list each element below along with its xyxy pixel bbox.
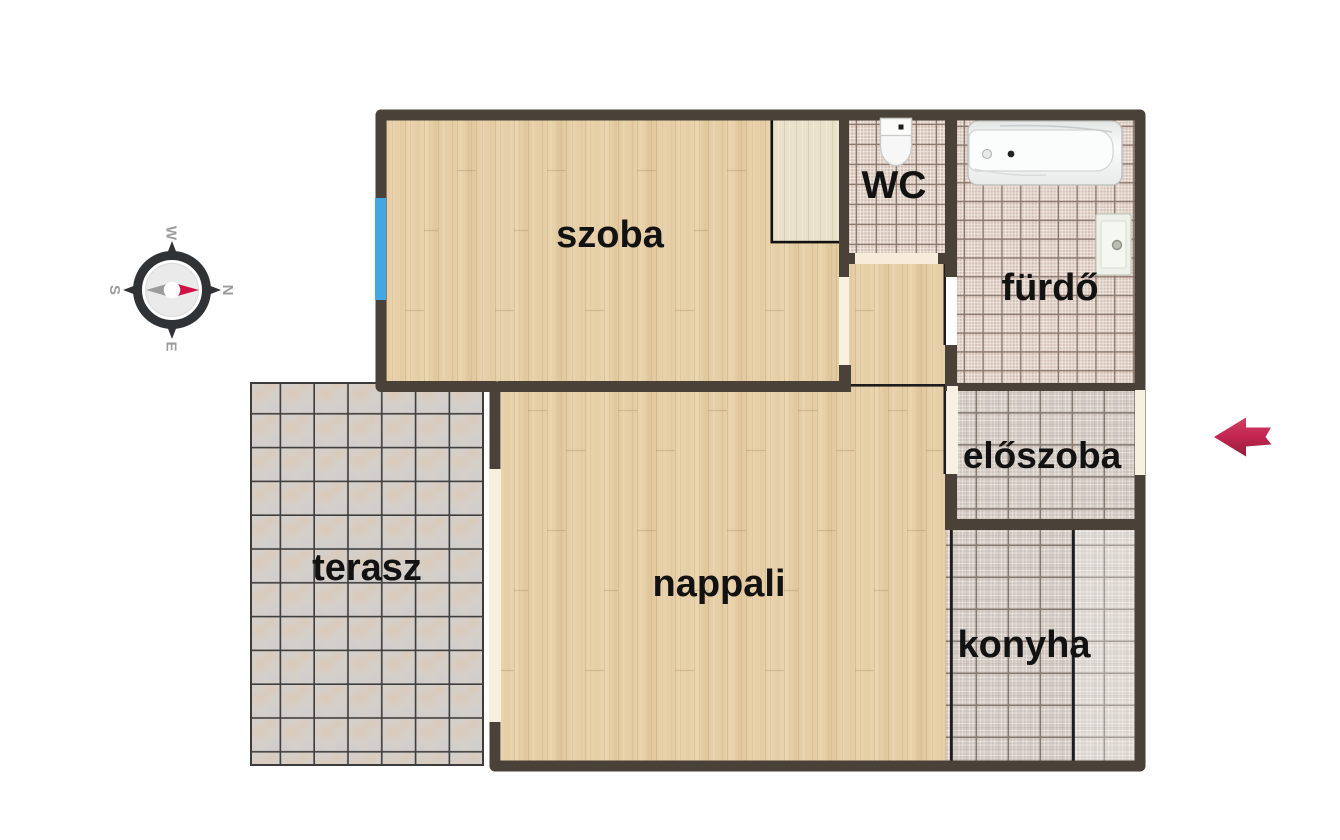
svg-text:N: N bbox=[219, 285, 236, 296]
svg-text:terasz: terasz bbox=[312, 547, 422, 589]
svg-text:konyha: konyha bbox=[957, 624, 1091, 666]
svg-text:W: W bbox=[163, 226, 180, 241]
svg-text:fürdő: fürdő bbox=[1001, 267, 1098, 309]
svg-text:előszoba: előszoba bbox=[963, 435, 1122, 476]
svg-text:E: E bbox=[163, 341, 180, 351]
svg-text:szoba: szoba bbox=[556, 214, 665, 256]
svg-text:WC: WC bbox=[862, 164, 927, 207]
svg-text:S: S bbox=[106, 285, 123, 295]
svg-text:nappali: nappali bbox=[652, 563, 785, 605]
